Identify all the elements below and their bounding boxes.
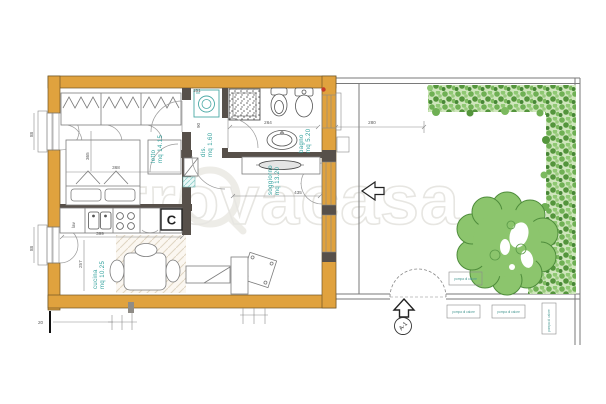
svg-text:mq 10.25: mq 10.25 <box>100 261 106 289</box>
svg-text:mq 5.20: mq 5.20 <box>306 128 312 153</box>
heat-pump-label: pompa di calore <box>497 310 520 314</box>
dimension-dis-w: 151 <box>193 88 201 93</box>
toilet-icon <box>295 88 313 117</box>
sideboard <box>242 157 320 174</box>
dimension-bagno-w: 264 <box>264 120 272 125</box>
dimension-dis-h: 90 <box>196 122 201 128</box>
shower-icon <box>229 89 260 120</box>
svg-text:mq 14.15: mq 14.15 <box>158 135 164 163</box>
floor-plan-svg: trovacasa <box>0 0 606 404</box>
boiler-box: C <box>161 209 182 230</box>
room-soggiorno-label: soggiorno mq 13.20 <box>268 165 281 195</box>
sink-cabinet-label: lav <box>71 221 76 228</box>
svg-text:280: 280 <box>368 120 376 125</box>
wall-marker-dot <box>321 87 325 91</box>
bed <box>66 140 140 205</box>
tv-cabinet <box>186 266 230 283</box>
dimension-cucina-h: 257 <box>78 260 83 268</box>
dimension-soggiorno-w: 435 <box>294 190 302 195</box>
dimension-cucina-w: 399 <box>96 231 104 236</box>
heat-pump-label: pompa di calore <box>454 277 477 281</box>
duct-shaft <box>183 177 195 187</box>
heat-pump-label: pompa di calore <box>452 310 475 314</box>
svg-text:mq 13.20: mq 13.20 <box>275 167 281 195</box>
washbasin-icon <box>267 131 297 150</box>
heat-pump-label: pompa di calore <box>547 309 551 332</box>
bidet-icon <box>271 88 287 116</box>
svg-text:88: 88 <box>29 245 34 251</box>
floor-plan-page: trovacasa <box>0 0 606 404</box>
dimension-plinth: 20 <box>38 320 44 325</box>
svg-text:88: 88 <box>29 131 34 137</box>
dimension-bed-h: 365 <box>85 152 90 160</box>
svg-text:bagno: bagno <box>299 134 305 153</box>
svg-text:soggiorno: soggiorno <box>268 165 274 195</box>
svg-text:mq 1.60: mq 1.60 <box>208 132 214 157</box>
sofa <box>231 257 248 294</box>
washing-machine-icon <box>194 90 219 117</box>
boiler-label: C <box>167 213 177 228</box>
svg-text:cucina: cucina <box>93 269 99 289</box>
section-marker: A-1 <box>395 318 412 335</box>
dimension-bed-w: 368 <box>112 165 120 170</box>
svg-text:letto: letto <box>151 149 157 163</box>
svg-text:dis.: dis. <box>201 146 207 157</box>
